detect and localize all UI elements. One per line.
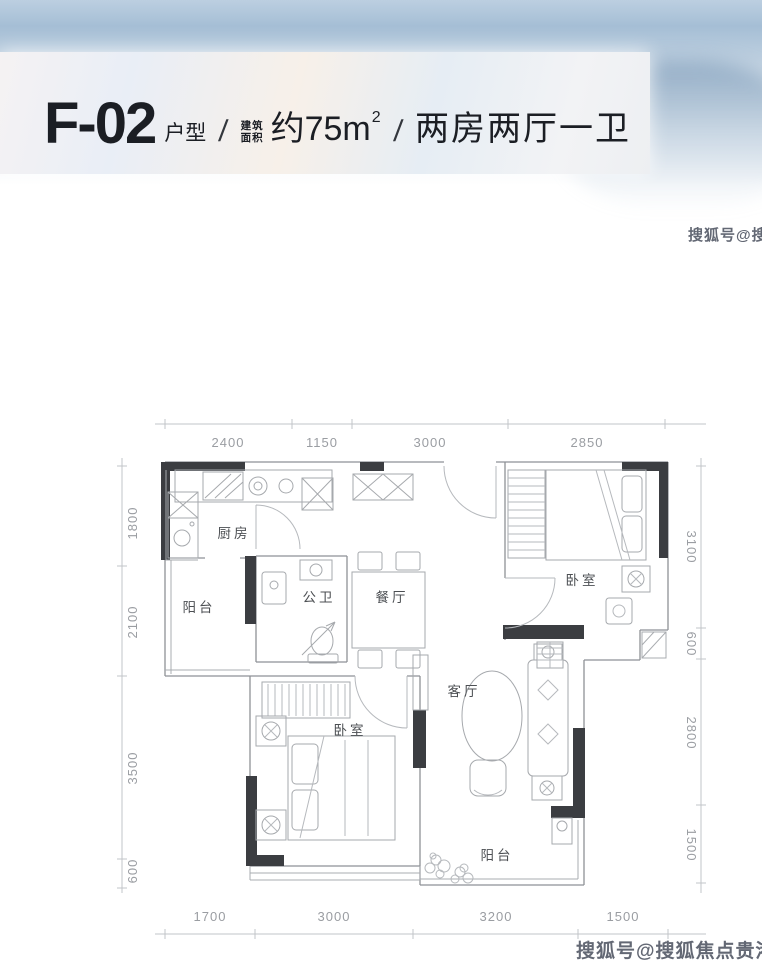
floor-plan-svg: 2400 1150 3000 2850 1700 3000 3200 1500 …	[0, 0, 762, 970]
dim-left-2: 2100	[125, 606, 140, 639]
dim-left-4: 600	[125, 859, 140, 884]
label-bedroom-left: 卧室	[334, 722, 367, 738]
label-kitchen: 厨房	[218, 526, 251, 541]
label-living: 客厅	[448, 683, 481, 699]
room-labels: 厨房 阳台 公卫 餐厅 卧室 客厅 卧室 阳台	[183, 526, 599, 863]
bedroom-left-furniture	[256, 682, 395, 840]
dim-right-3: 2800	[684, 717, 699, 750]
dim-bottom-2: 3000	[318, 909, 351, 924]
label-bedroom-right: 卧室	[566, 572, 599, 588]
dimension-labels: 2400 1150 3000 2850 1700 3000 3200 1500 …	[125, 435, 699, 924]
dim-right-2: 600	[684, 632, 699, 657]
dim-top-3: 3000	[414, 435, 447, 450]
dim-left-3: 3500	[125, 752, 140, 785]
living-furniture	[413, 642, 568, 800]
dim-bottom-4: 1500	[607, 909, 640, 924]
entry-cabinets	[302, 474, 413, 510]
dim-left-1: 1800	[125, 507, 140, 540]
label-balcony-left: 阳台	[183, 600, 216, 615]
dim-right-1: 3100	[684, 531, 699, 564]
dim-bottom-1: 1700	[194, 909, 227, 924]
label-dining: 餐厅	[376, 590, 409, 605]
bathroom-fixtures	[262, 560, 338, 663]
floorplan-page: F-02 户型 / 建筑 面积 约75m2 / 两房两厅一卫 搜狐号@搜狐焦点贵…	[0, 0, 762, 970]
dim-top-4: 2850	[571, 435, 604, 450]
label-bath: 公卫	[303, 590, 336, 605]
walls-black	[161, 462, 668, 866]
walls-interior	[165, 462, 666, 676]
bedroom-right-furniture	[508, 470, 650, 624]
dining-furniture	[352, 552, 425, 668]
label-balcony-bottom: 阳台	[481, 848, 514, 863]
dim-top-2: 1150	[306, 435, 338, 450]
dim-bottom-3: 3200	[480, 909, 513, 924]
dim-right-4: 1500	[684, 829, 699, 862]
dim-top-1: 2400	[212, 435, 245, 450]
